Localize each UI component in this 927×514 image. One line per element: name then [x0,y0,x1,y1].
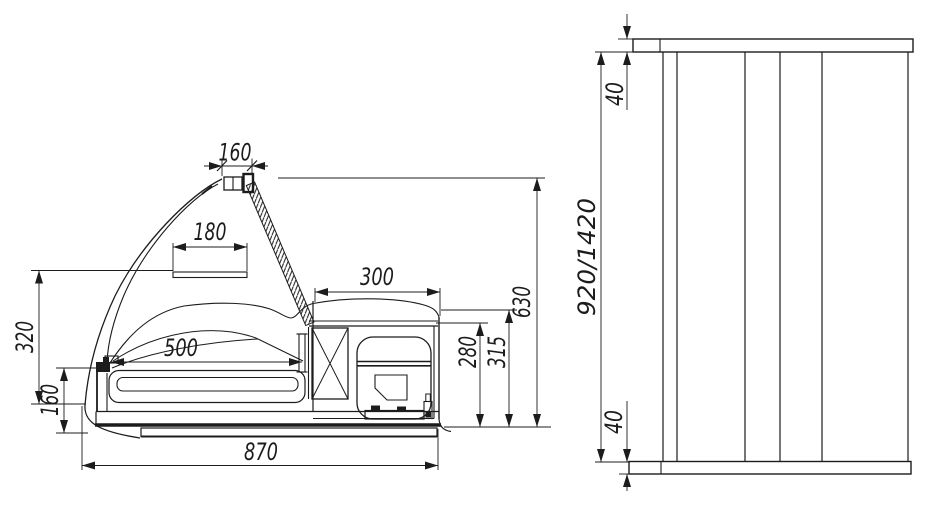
side-view: 160 180 500 300 630 [11,139,551,471]
technical-drawing-canvas: 160 180 500 300 630 [0,0,927,514]
front-sill [96,356,118,412]
dim-label-bottom-panel: 40 [600,410,628,434]
dim-label-shelf-width: 180 [194,218,227,246]
compressor [357,337,432,419]
deck-profile-curves [108,299,439,368]
dim-label-lamp-width: 160 [219,139,252,167]
display-shelf [173,272,247,278]
dim-label-inner-height: 280 [454,336,482,368]
dim-label-front-panel-height: 160 [36,384,64,416]
dim-shelf-width: 180 [173,218,247,271]
dim-lamp-width: 160 [204,139,268,177]
dim-top-panel: 40 [601,14,634,110]
body-panels [663,52,908,462]
dim-label-case-length: 920/1420 [573,198,601,316]
dim-label-top-panel: 40 [601,82,629,106]
rear-glass-hatched [246,182,314,325]
dim-label-display-depth: 500 [164,334,198,362]
dim-label-overall-height: 630 [508,286,536,318]
dim-label-glass-height: 320 [11,321,39,353]
dim-label-machine-height: 315 [483,336,511,368]
front-view: 40 920/1420 40 [573,14,913,491]
dim-overall-depth: 870 [82,406,438,470]
dim-case-length: 920/1420 [573,52,634,462]
base-plinth [95,412,441,437]
dim-machine-width: 300 [315,263,440,316]
bottom-panel [629,462,911,475]
dim-label-machine-width: 300 [360,263,394,291]
dim-glass-height: 320 [11,271,173,405]
dim-inner-height: 280 [436,323,488,427]
display-deck-tray [109,371,305,403]
top-panel [633,39,913,52]
technical-drawing: 160 180 500 300 630 [0,0,927,514]
dim-bottom-panel: 40 [600,401,632,491]
dim-front-panel-height: 160 [36,368,97,433]
dim-label-overall-depth: 870 [244,438,278,466]
condenser-coil [297,328,349,399]
